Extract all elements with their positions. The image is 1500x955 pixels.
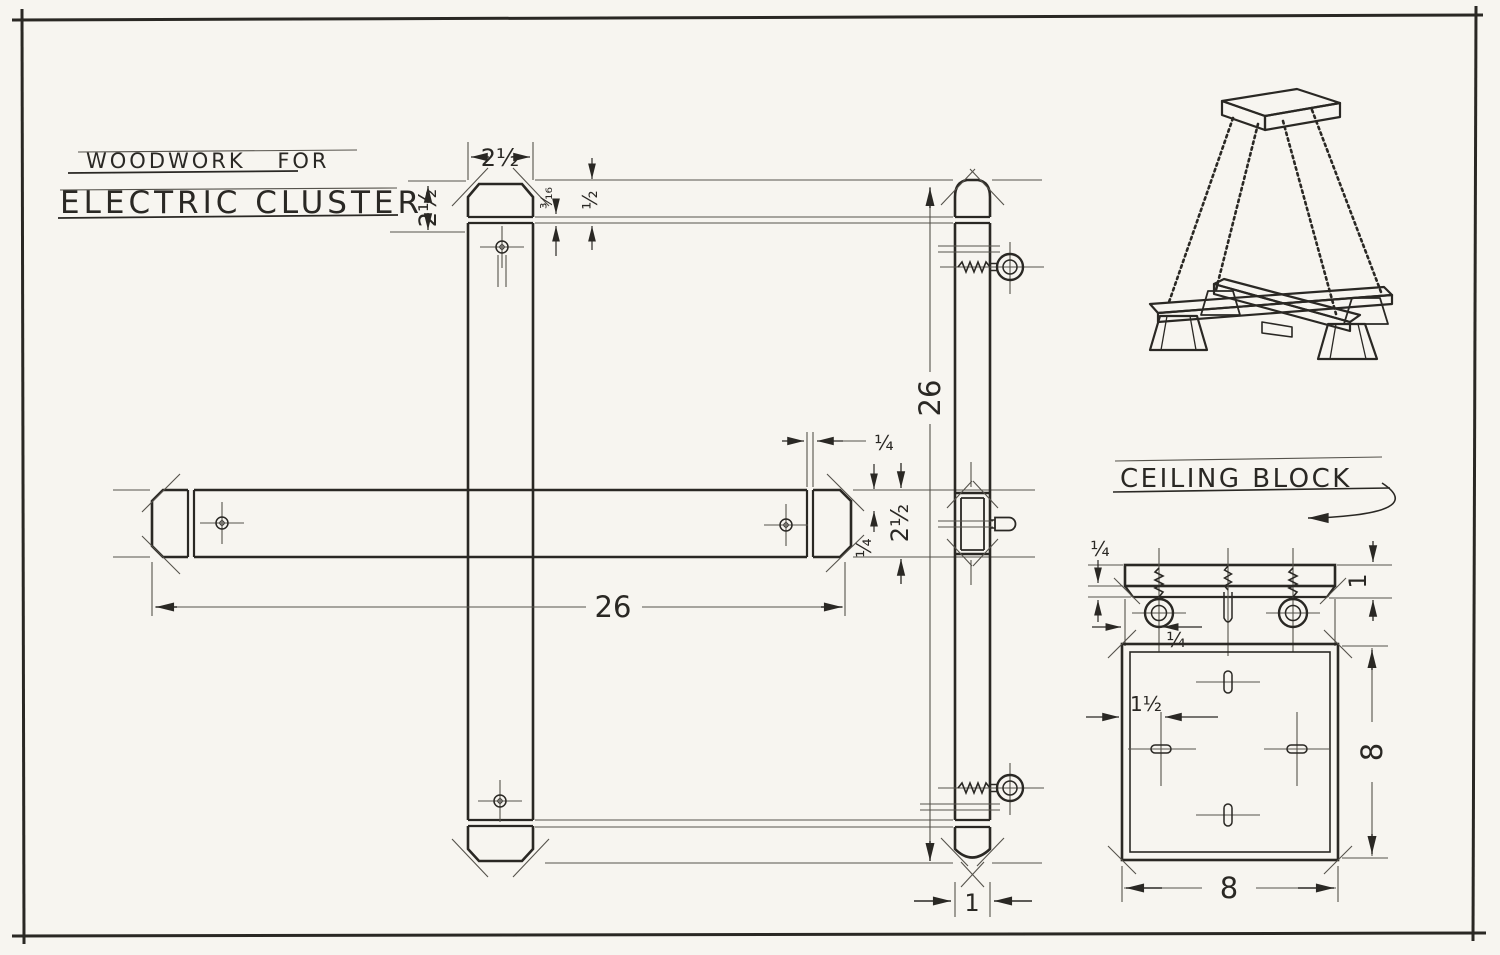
dim-end-band: ¼ xyxy=(874,431,893,455)
dim-arm-face: 2½ xyxy=(886,504,914,543)
ceiling-block-label: CEILING BLOCK xyxy=(1113,457,1395,518)
hanging-chains xyxy=(1168,110,1381,314)
ceiling-block-front-view: ¼ ¼ 1 xyxy=(1088,537,1392,656)
block-eye-screw-right xyxy=(1266,548,1320,652)
horizontal-arm-plan xyxy=(142,474,864,574)
dim-block-edge-thickness: 1 xyxy=(1344,573,1372,588)
cross-arms-plan-view xyxy=(142,168,864,877)
screw-hole-left-arm xyxy=(200,502,244,544)
dim-arm-end-width: 2½ xyxy=(481,144,520,172)
sketch-cross-arms xyxy=(1150,279,1392,337)
slot-top xyxy=(1196,671,1260,693)
screw-hole-top xyxy=(480,226,524,287)
dim-block-lip: ¼ xyxy=(1090,537,1109,561)
arm-side-view xyxy=(920,169,1044,887)
eye-screw-bottom xyxy=(920,763,1044,815)
title-line-1: WOODWORK FOR xyxy=(86,149,330,173)
dim-lap-depth: ¼ xyxy=(852,538,876,557)
dim-block-width: 8 xyxy=(1220,871,1238,905)
dim-screw-inset: ¼ xyxy=(1166,628,1185,652)
half-lap-joint-side xyxy=(938,462,1016,585)
dim-slot-inset: 1½ xyxy=(1130,692,1162,716)
slot-right xyxy=(1264,712,1330,786)
side-screw xyxy=(990,518,1016,531)
screw-hole-bottom xyxy=(478,780,522,822)
dim-arm-length: 26 xyxy=(595,590,632,624)
ceiling-block-plan-view: 1½ 8 8 xyxy=(1086,630,1389,905)
dim-cap-reveal: ³⁄₁₆ xyxy=(537,187,556,209)
blueprint-page: WOODWORK FOR ELECTRIC CLUSTER xyxy=(0,0,1500,955)
drawing-canvas: WOODWORK FOR ELECTRIC CLUSTER xyxy=(0,0,1500,955)
sketch-ceiling-block xyxy=(1222,89,1340,130)
dimensions-main: 2½ 2½ ³⁄₁₆ ½ ¼ ¼ 2½ 26 xyxy=(155,144,1032,917)
dim-cap-height: 2½ xyxy=(414,189,442,228)
slot-bottom xyxy=(1196,804,1260,826)
slot-left xyxy=(1128,712,1196,786)
dim-block-depth: 8 xyxy=(1355,743,1389,761)
dim-cap-step: ½ xyxy=(578,190,602,209)
vertical-arm-plan xyxy=(452,168,549,877)
screw-hole-right-arm xyxy=(764,504,808,546)
perspective-sketch xyxy=(1150,89,1392,359)
title-block: WOODWORK FOR ELECTRIC CLUSTER xyxy=(58,149,423,221)
dim-arm-length-side: 26 xyxy=(913,380,947,417)
dim-arm-thickness: 1 xyxy=(964,889,979,917)
